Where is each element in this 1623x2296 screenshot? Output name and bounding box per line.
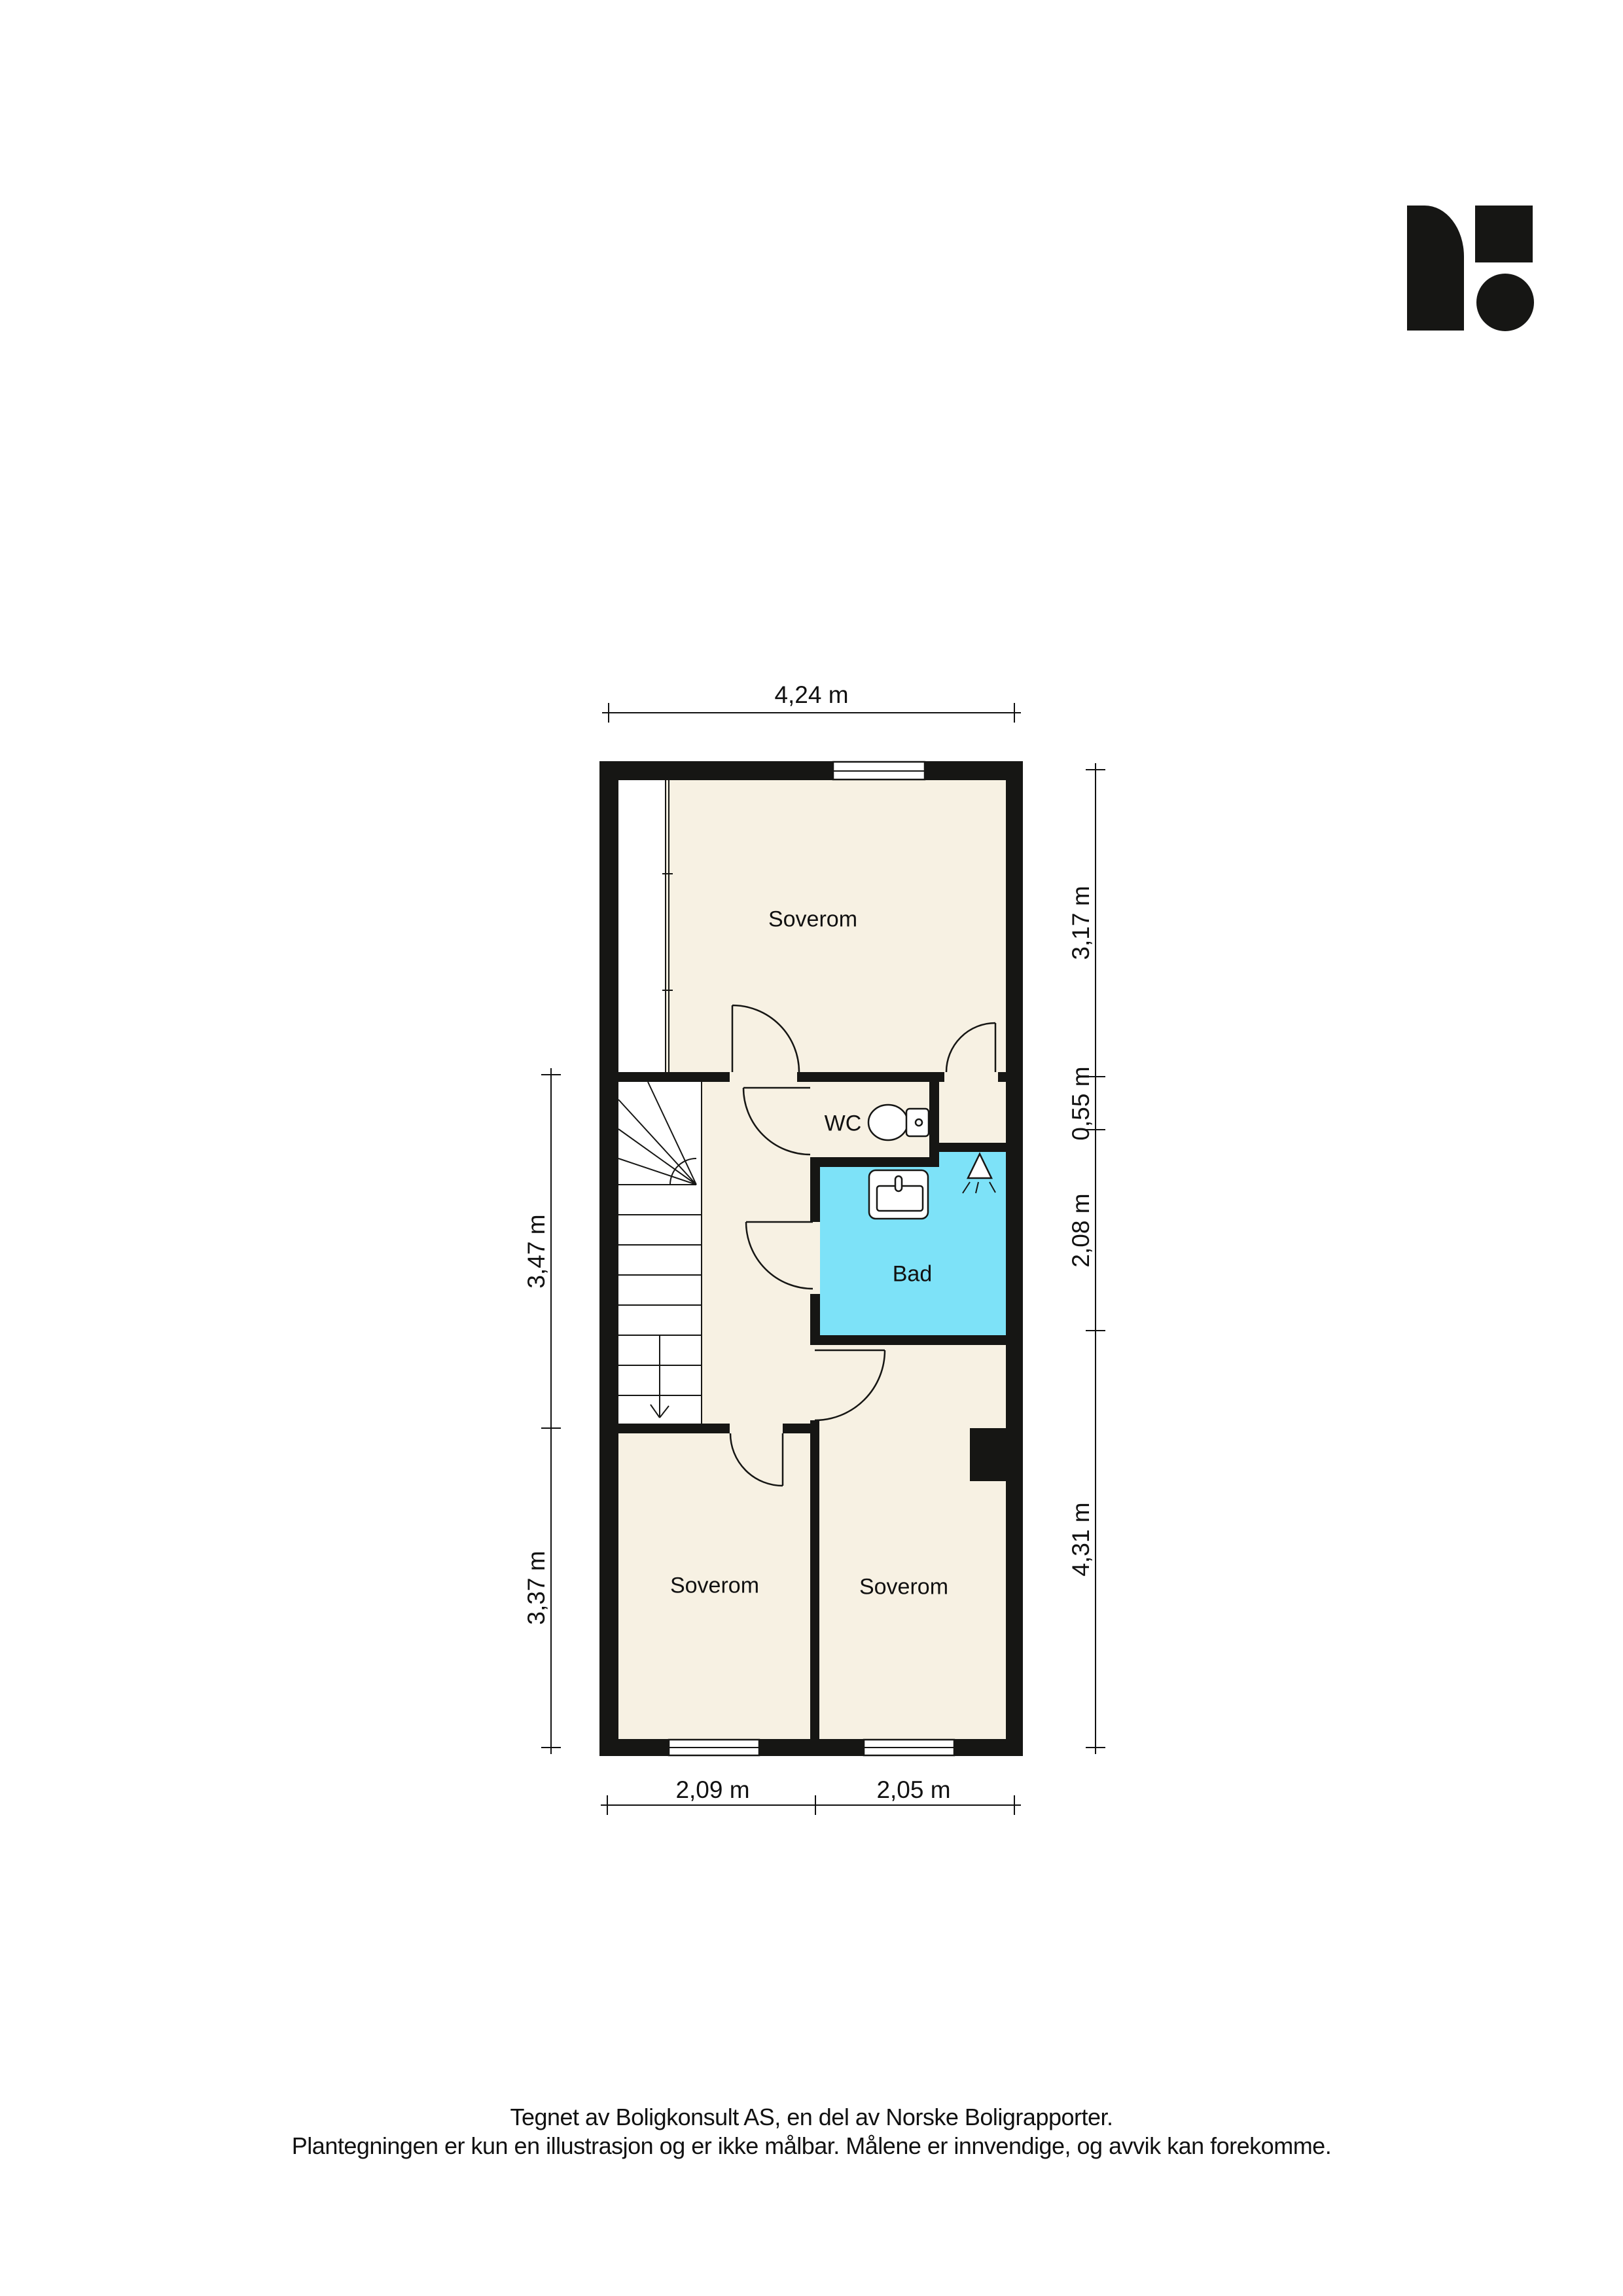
- sink-faucet: [895, 1176, 902, 1191]
- floorplan-page: Soverom WC Bad Soverom Soverom 4,24 m 3,…: [0, 0, 1623, 2296]
- dim-label-bottom-2: 2,05 m: [876, 1776, 950, 1804]
- toilet-bowl: [868, 1105, 908, 1140]
- footer-disclaimer: Plantegningen er kun en illustrasjon og …: [292, 2132, 1331, 2160]
- chimney-block: [970, 1428, 1006, 1481]
- wall-outer-right: [1006, 761, 1023, 1756]
- wall-bedrooms-center: [810, 1420, 819, 1739]
- dim-label-left-1: 3,47 m: [523, 1214, 550, 1288]
- wall-wc-right: [929, 1082, 939, 1167]
- wall-below-stairs-post: [783, 1424, 810, 1433]
- wall-outer-left: [599, 761, 618, 1756]
- floorplan-drawing: [0, 0, 1623, 2296]
- footer-credit: Tegnet av Boligkonsult AS, en del av Nor…: [510, 2104, 1113, 2131]
- wall-bedroomtop-b: [797, 1072, 944, 1082]
- room-label-bedroom-bottom-left: Soverom: [670, 1573, 759, 1599]
- wall-bedroomtop-c: [998, 1072, 1006, 1082]
- room-label-bedroom-bottom-right: Soverom: [859, 1575, 948, 1600]
- dim-line-bottom: [601, 1795, 1021, 1815]
- dim-label-right-4: 4,31 m: [1067, 1502, 1095, 1576]
- room-label-wc: WC: [825, 1111, 862, 1137]
- wall-outer-top: [599, 761, 1023, 780]
- wall-nook-bottom: [939, 1143, 1006, 1152]
- dim-label-left-2: 3,37 m: [523, 1551, 550, 1624]
- sink-icon: [869, 1170, 928, 1219]
- dim-label-right-3: 2,08 m: [1067, 1193, 1095, 1267]
- room-label-bedroom-top: Soverom: [768, 907, 857, 933]
- wall-below-stairs: [618, 1424, 730, 1433]
- wall-bedroomtop-a: [618, 1072, 730, 1082]
- dim-label-right-1: 3,17 m: [1067, 886, 1095, 960]
- toilet-flush-button: [916, 1119, 922, 1126]
- window-bottom-right: [864, 1740, 954, 1755]
- wall-bath-left-upper: [810, 1157, 820, 1222]
- wall-wc-bottom: [811, 1157, 939, 1167]
- window-bottom-left: [669, 1740, 759, 1755]
- dim-label-bottom-1: 2,09 m: [675, 1776, 749, 1804]
- wall-bath-bottom: [810, 1335, 1006, 1345]
- dim-line-left: [541, 1068, 561, 1754]
- window-top: [833, 762, 925, 780]
- room-label-bath: Bad: [893, 1262, 933, 1287]
- wall-outer-bottom: [599, 1739, 1023, 1756]
- dim-label-right-2: 0,55 m: [1067, 1066, 1095, 1140]
- wardrobe-strip: [618, 780, 666, 1072]
- dim-label-top: 4,24 m: [774, 681, 848, 709]
- toilet-icon: [868, 1105, 929, 1140]
